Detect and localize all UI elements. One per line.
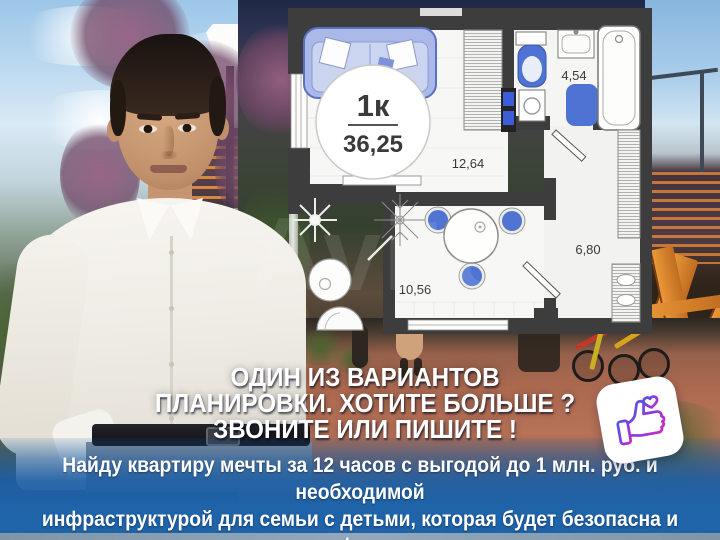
sink: [558, 30, 594, 59]
shirt-button: [169, 250, 174, 255]
watermark: Avito: [250, 196, 670, 315]
offer-line-2: инфраструктурой для семьи с детьми, кото…: [29, 506, 691, 540]
headline: ОДИН ИЗ ВАРИАНТОВ ПЛАНИРОВКИ. ХОТИТЕ БОЛ…: [81, 364, 648, 442]
bathtub: [598, 26, 640, 130]
bathroom-area-label: 4,54: [561, 68, 586, 83]
hair: [110, 80, 126, 136]
kitchen-window: [408, 320, 508, 330]
living-area-label: 12,64: [452, 156, 485, 171]
nose-shadow: [157, 151, 181, 159]
ad-creative: 1к 36,25 12,64: [0, 0, 720, 540]
flat-type-label: 1к: [357, 88, 390, 123]
offer-line-1: Найду квартиру мечты за 12 часов с выгод…: [29, 452, 691, 506]
bath-mat: [566, 84, 598, 126]
headline-line-3: ЗВОНИТЕ ИЛИ ПИШИТЕ !: [81, 416, 648, 442]
washing-machine: [519, 90, 545, 121]
headline-line-2: ПЛАНИРОВКИ. ХОТИТЕ БОЛЬШЕ ?: [81, 390, 648, 416]
hair: [110, 34, 224, 116]
toilet: [516, 32, 546, 87]
window-bay: [420, 8, 462, 16]
shirt-button: [169, 306, 174, 311]
shelf-unit: [501, 88, 516, 132]
mouth: [150, 165, 187, 173]
eye: [139, 125, 157, 133]
thumbs-up-heart-icon: [606, 386, 673, 453]
area-badge: 1к 36,25: [316, 65, 430, 179]
wardrobe: [464, 30, 502, 130]
total-area-label: 36,25: [343, 131, 403, 158]
crane-mast: [700, 70, 704, 172]
like-sticker: [594, 374, 687, 467]
eye: [178, 124, 196, 132]
hair: [209, 76, 226, 136]
offer-text: Найду квартиру мечты за 12 часов с выгод…: [29, 452, 691, 540]
headline-line-1: ОДИН ИЗ ВАРИАНТОВ: [81, 364, 648, 390]
